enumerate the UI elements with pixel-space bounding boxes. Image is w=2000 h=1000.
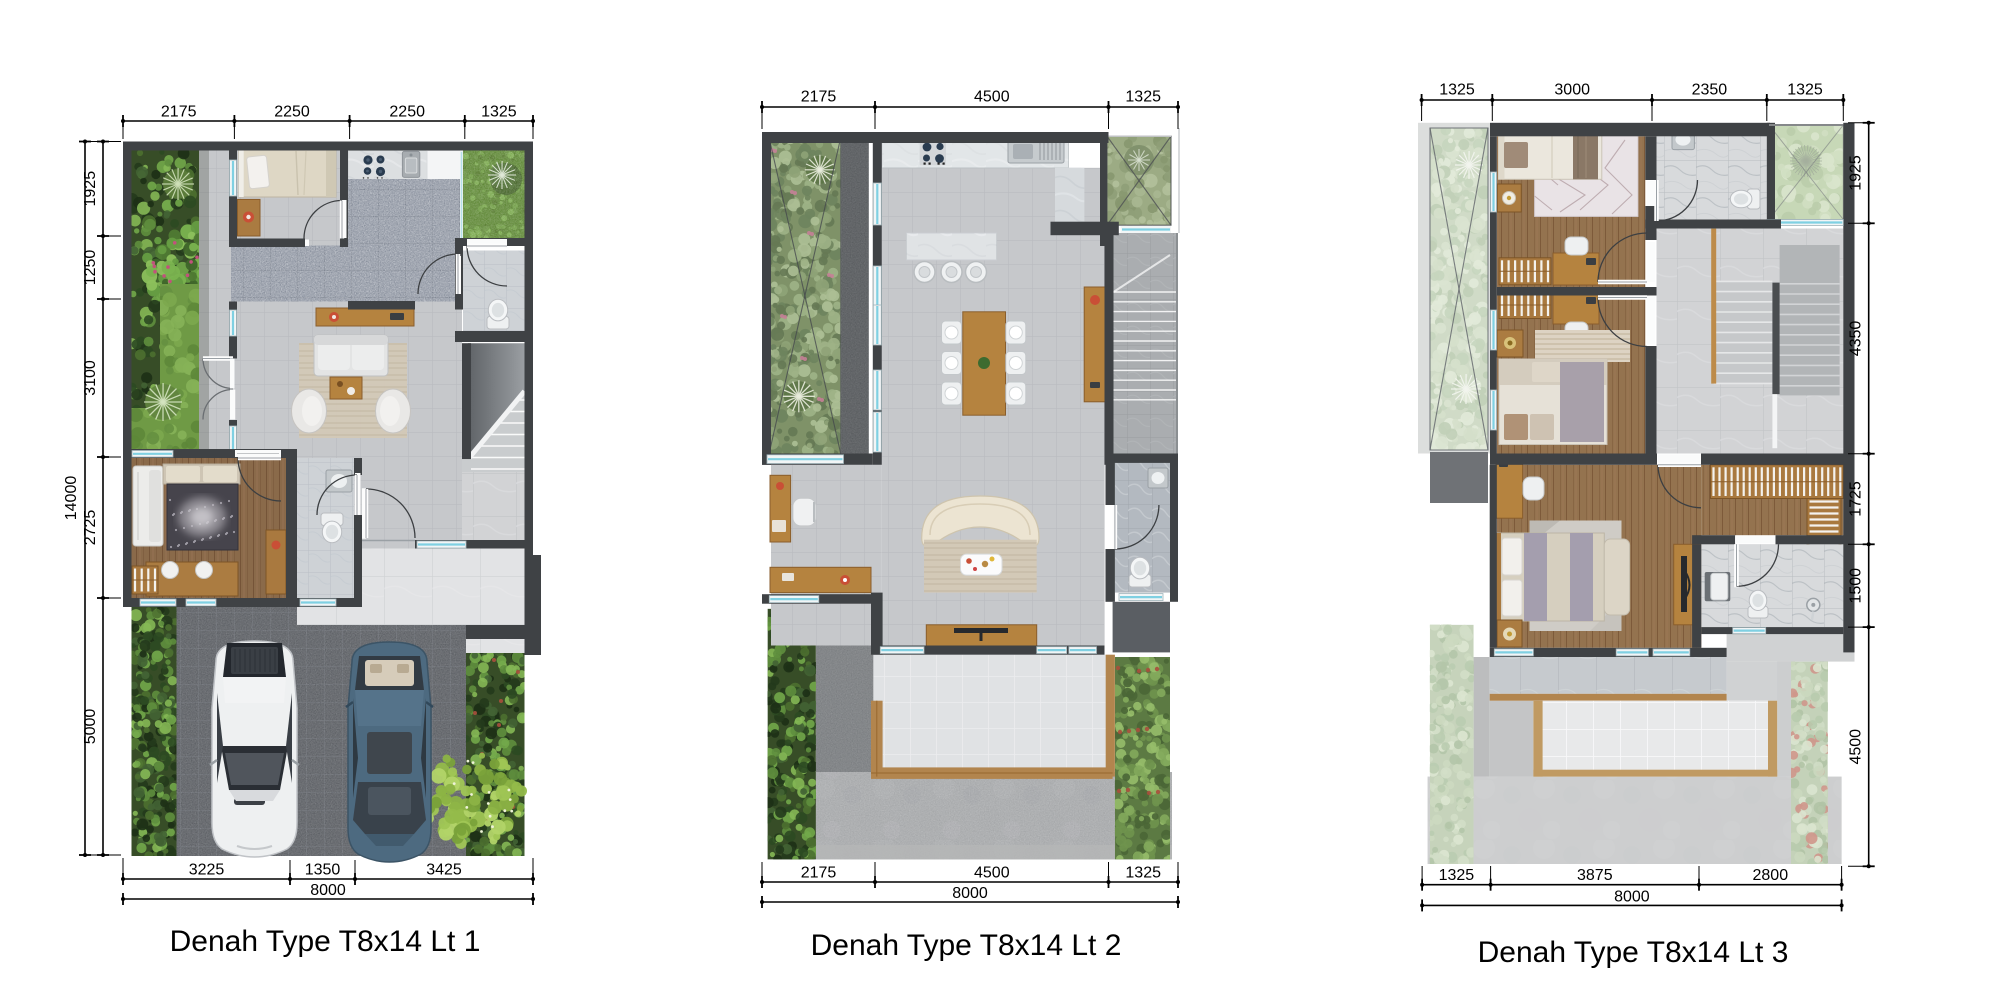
svg-text:2350: 2350 bbox=[1692, 82, 1728, 99]
svg-text:3100: 3100 bbox=[82, 360, 99, 396]
svg-text:8000: 8000 bbox=[1614, 889, 1650, 906]
svg-text:4350: 4350 bbox=[1848, 321, 1865, 357]
svg-text:1925: 1925 bbox=[1848, 155, 1865, 191]
svg-text:1325: 1325 bbox=[1125, 865, 1161, 882]
svg-text:3425: 3425 bbox=[426, 862, 462, 879]
svg-text:1325: 1325 bbox=[1439, 867, 1475, 884]
svg-text:1325: 1325 bbox=[1125, 89, 1161, 106]
svg-text:8000: 8000 bbox=[310, 882, 346, 899]
svg-text:Denah Type T8x14 Lt 3: Denah Type T8x14 Lt 3 bbox=[1478, 936, 1789, 969]
svg-text:5000: 5000 bbox=[82, 709, 99, 745]
svg-text:2175: 2175 bbox=[161, 104, 197, 121]
svg-text:2175: 2175 bbox=[801, 865, 837, 882]
svg-text:2175: 2175 bbox=[801, 89, 837, 106]
svg-text:8000: 8000 bbox=[952, 885, 988, 902]
svg-text:2250: 2250 bbox=[274, 104, 310, 121]
svg-text:1350: 1350 bbox=[305, 862, 341, 879]
svg-text:1325: 1325 bbox=[1439, 82, 1475, 99]
svg-text:4500: 4500 bbox=[974, 89, 1010, 106]
svg-text:1725: 1725 bbox=[1848, 481, 1865, 517]
svg-text:1325: 1325 bbox=[1787, 82, 1823, 99]
svg-text:Denah Type T8x14 Lt 1: Denah Type T8x14 Lt 1 bbox=[170, 925, 481, 958]
svg-text:1925: 1925 bbox=[82, 171, 99, 207]
svg-text:3875: 3875 bbox=[1577, 867, 1613, 884]
svg-text:2800: 2800 bbox=[1753, 867, 1789, 884]
svg-text:2725: 2725 bbox=[82, 510, 99, 546]
svg-text:4500: 4500 bbox=[974, 865, 1010, 882]
svg-text:Denah Type T8x14 Lt 2: Denah Type T8x14 Lt 2 bbox=[811, 929, 1122, 962]
svg-text:1250: 1250 bbox=[82, 250, 99, 286]
svg-text:3000: 3000 bbox=[1554, 82, 1590, 99]
svg-text:4500: 4500 bbox=[1848, 729, 1865, 765]
svg-text:14000: 14000 bbox=[63, 476, 80, 521]
svg-text:3225: 3225 bbox=[189, 862, 225, 879]
svg-text:1500: 1500 bbox=[1848, 568, 1865, 604]
svg-text:1325: 1325 bbox=[481, 104, 517, 121]
svg-text:2250: 2250 bbox=[389, 104, 425, 121]
